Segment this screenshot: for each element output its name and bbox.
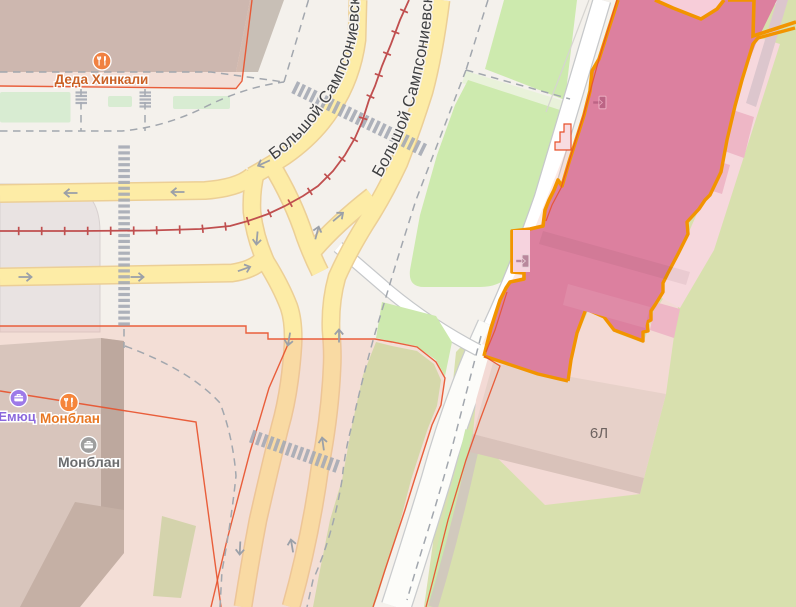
- svg-text:Емюц: Емюц: [0, 409, 36, 424]
- svg-text:Монблан: Монблан: [58, 454, 120, 470]
- svg-text:Монблан: Монблан: [40, 411, 100, 426]
- svg-text:6Л: 6Л: [590, 425, 608, 442]
- svg-text:Деда Хинкали: Деда Хинкали: [55, 72, 149, 87]
